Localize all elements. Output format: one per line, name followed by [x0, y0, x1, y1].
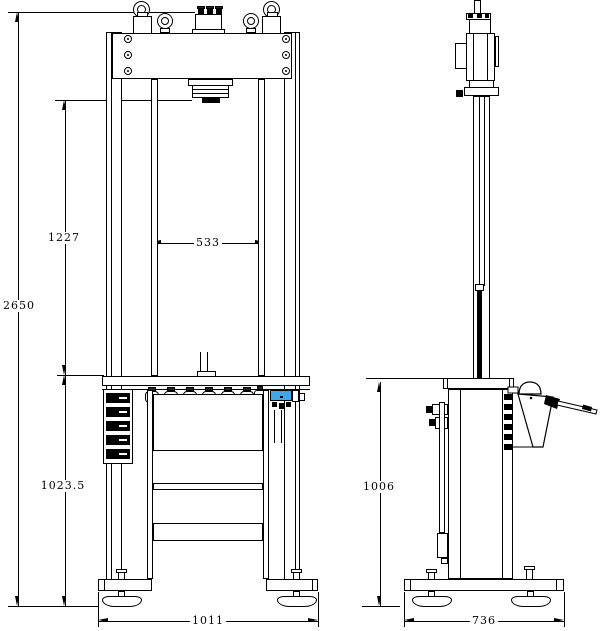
arrowhead	[62, 365, 66, 375]
dim-ram-to-table: 1227	[46, 232, 82, 244]
base-pad-left	[98, 579, 152, 591]
arrowhead	[62, 100, 66, 110]
anchor-bolt-stem	[428, 572, 435, 580]
side-housing-line	[487, 33, 488, 81]
ram-body-line	[192, 89, 229, 90]
dim-line-side-table-height	[380, 382, 381, 606]
side-motor-block	[469, 19, 491, 34]
side-top-rod	[474, 0, 481, 14]
bench-window	[153, 394, 263, 451]
indicator-clamp	[286, 402, 291, 407]
side-screw-cap	[475, 284, 484, 291]
table-fixture-post	[207, 352, 208, 371]
beam-bolt	[124, 67, 132, 75]
crossbeam	[112, 33, 292, 79]
indicator-clamp	[272, 402, 277, 407]
indicator-dot	[280, 396, 283, 398]
side-column-line	[484, 96, 485, 286]
beam-bolt	[282, 35, 290, 43]
base-pad-tick	[104, 579, 105, 591]
leveling-foot	[277, 596, 317, 607]
arrowhead	[15, 596, 19, 606]
louver-tag	[118, 424, 128, 428]
side-lever-assembly	[505, 376, 606, 462]
side-screw	[477, 291, 482, 380]
ground-line-front	[8, 606, 98, 607]
side-column-line	[479, 96, 480, 286]
indicator-clamp	[279, 403, 285, 409]
eyebolt-inner-left-hole	[161, 17, 169, 25]
indicator-bracket	[299, 393, 305, 401]
column-right-edge	[295, 32, 296, 580]
side-valve-cap	[426, 406, 433, 413]
side-base-tick	[556, 579, 557, 591]
dim-base-depth: 736	[470, 615, 498, 627]
manifold-body	[195, 14, 222, 30]
arrowhead	[62, 596, 66, 606]
eyebolt-inner-right-hole	[247, 17, 255, 25]
arrowhead	[98, 618, 108, 622]
louver-tag	[118, 396, 128, 400]
base-pad-tick	[312, 579, 313, 591]
arrowhead	[377, 382, 381, 392]
ext-line-base-right	[318, 592, 319, 627]
dim-side-table-height: 1006	[361, 481, 397, 493]
side-cap-bolt	[485, 14, 489, 18]
bench-rail-lower	[153, 523, 263, 541]
arrowhead	[377, 596, 381, 606]
indicator-bracket	[292, 390, 299, 402]
side-base	[404, 579, 564, 591]
arrowhead	[308, 618, 318, 622]
ext-line-depth-right	[564, 592, 565, 627]
side-housing-line	[473, 33, 474, 81]
screw-rod-right	[258, 79, 265, 376]
anchor-bolt-stem	[118, 572, 125, 580]
side-flange-lower	[464, 87, 499, 96]
side-base-tick	[410, 579, 411, 591]
bench-rail-upper	[153, 483, 263, 490]
column-stub-left	[133, 16, 152, 34]
dim-base-width: 1011	[190, 615, 226, 627]
arrowhead	[554, 618, 564, 622]
side-flange-knob	[456, 90, 463, 97]
beam-bolt	[124, 51, 132, 59]
dim-clear-width: 533	[194, 237, 222, 249]
bench-leg-right	[263, 390, 269, 579]
indicator-lead	[274, 410, 275, 443]
ext-line-side-table	[366, 378, 443, 379]
table-fixture-post	[200, 352, 201, 371]
side-hanging-strip	[439, 402, 445, 533]
side-cap-bolt	[468, 14, 473, 18]
ram-pad	[202, 98, 220, 103]
side-cabinet-line	[502, 389, 503, 579]
beam-bolt	[282, 67, 290, 75]
base-pad-right	[266, 579, 318, 591]
anchor-bolt-stem	[293, 572, 300, 580]
column-left	[106, 32, 122, 580]
dim-overall-height: 2650	[1, 300, 37, 312]
table-top	[102, 376, 310, 386]
arrowhead	[15, 12, 19, 22]
louver-tag	[118, 410, 128, 414]
side-cabinet-line	[460, 389, 461, 579]
indicator-lead	[281, 410, 282, 443]
ext-line-ram	[55, 100, 192, 101]
louver-tag	[118, 438, 128, 442]
side-strip-block	[437, 533, 448, 558]
side-housing	[466, 33, 495, 81]
louver-tag	[118, 452, 128, 456]
side-cap-bolt	[477, 14, 482, 18]
side-strip-tab	[441, 558, 448, 564]
technical-drawing-canvas: 2650 1227 1023.5 533 1011	[0, 0, 606, 631]
ground-line-side	[362, 606, 400, 607]
dim-table-to-floor: 1023.5	[39, 480, 88, 492]
ram-body	[192, 85, 229, 98]
side-junction-box	[455, 43, 467, 69]
column-right	[284, 32, 300, 580]
arrowhead	[404, 618, 414, 622]
side-table-tick	[447, 378, 448, 389]
beam-bolt	[282, 51, 290, 59]
beam-bolt	[124, 35, 132, 43]
leveling-foot	[102, 596, 142, 607]
leveling-foot	[412, 596, 452, 607]
side-back-plate	[495, 36, 499, 67]
column-left-edge	[111, 32, 112, 580]
arrowhead	[62, 375, 66, 385]
screw-rod-left	[151, 79, 158, 376]
anchor-bolt-stem	[526, 569, 533, 580]
leveling-foot	[511, 596, 551, 607]
column-stub-right	[262, 16, 281, 34]
side-valve-cap	[429, 419, 436, 426]
side-table-top	[443, 378, 514, 389]
ram-body-line	[192, 93, 229, 94]
